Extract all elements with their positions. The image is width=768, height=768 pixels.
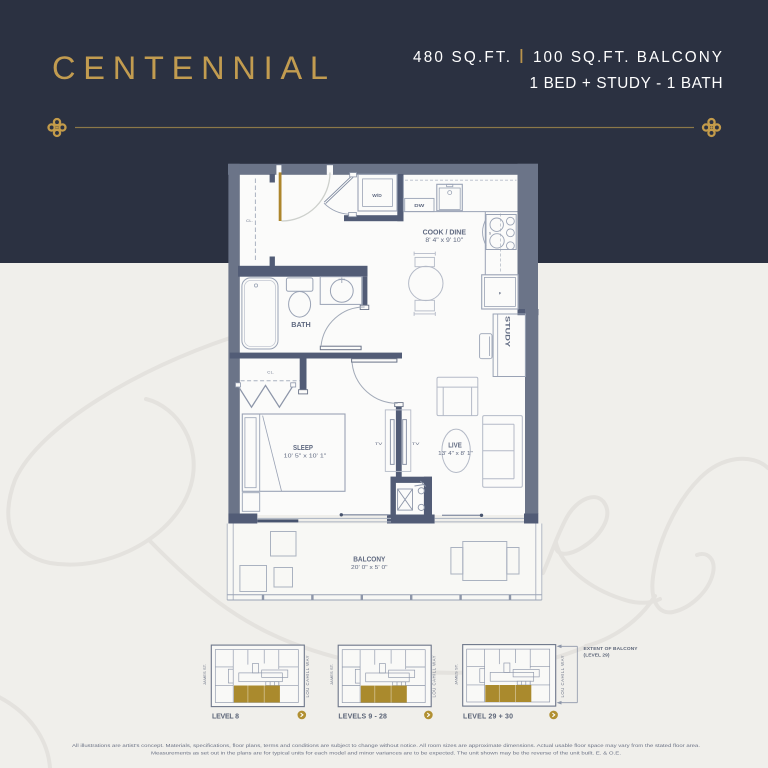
svg-text:(LEVEL 29): (LEVEL 29) — [584, 652, 610, 658]
svg-text:JAMES ST.: JAMES ST. — [329, 664, 334, 685]
svg-text:STUDY: STUDY — [503, 316, 509, 347]
svg-text:LEVELS 9 - 28: LEVELS 9 - 28 — [338, 713, 387, 720]
svg-text:JAMES ST.: JAMES ST. — [202, 664, 207, 685]
svg-text:SLEEP: SLEEP — [293, 443, 313, 452]
svg-text:8' 4" x 9' 10": 8' 4" x 9' 10" — [425, 238, 463, 244]
svg-text:LEVEL 8: LEVEL 8 — [212, 713, 239, 720]
svg-text:13' 4" x 8' 1": 13' 4" x 8' 1" — [438, 451, 473, 457]
svg-text:EXTENT OF BALCONY: EXTENT OF BALCONY — [584, 646, 639, 652]
svg-text:CL.: CL. — [267, 370, 274, 375]
svg-text:10' 5" x 10' 1": 10' 5" x 10' 1" — [284, 453, 327, 459]
svg-text:CL.: CL. — [246, 218, 253, 223]
svg-text:480 SQ.FT.: 480 SQ.FT. — [413, 49, 510, 66]
svg-text:DW: DW — [414, 203, 425, 208]
svg-text:BATH: BATH — [291, 320, 311, 329]
svg-text:1 BED + STUDY - 1 BATH: 1 BED + STUDY - 1 BATH — [530, 75, 723, 92]
svg-text:TV: TV — [375, 441, 383, 446]
svg-text:LEVEL 29 + 30: LEVEL 29 + 30 — [463, 713, 513, 720]
svg-text:CENTENNIAL: CENTENNIAL — [52, 50, 328, 86]
svg-text:100 SQ.FT. BALCONY: 100 SQ.FT. BALCONY — [533, 49, 722, 66]
svg-text:BALCONY: BALCONY — [353, 557, 385, 564]
svg-text:COOK / DINE: COOK / DINE — [423, 227, 467, 236]
svg-text:TV: TV — [412, 441, 420, 446]
svg-text:LOU CAHILL WAY: LOU CAHILL WAY — [432, 655, 437, 697]
svg-text:LOU CAHILL WAY: LOU CAHILL WAY — [560, 655, 565, 697]
svg-text:Measurements as set out in the: Measurements as set out in the plans are… — [151, 750, 621, 756]
svg-text:LOU CAHILL WAY: LOU CAHILL WAY — [305, 655, 310, 697]
svg-text:W/D: W/D — [372, 193, 382, 198]
svg-text:20' 0" x 5' 0": 20' 0" x 5' 0" — [351, 565, 388, 571]
svg-text:JAMES ST.: JAMES ST. — [453, 664, 458, 685]
svg-text:LIVE: LIVE — [448, 441, 462, 450]
svg-text:All illustrations are artist's: All illustrations are artist's concept. … — [72, 743, 700, 749]
